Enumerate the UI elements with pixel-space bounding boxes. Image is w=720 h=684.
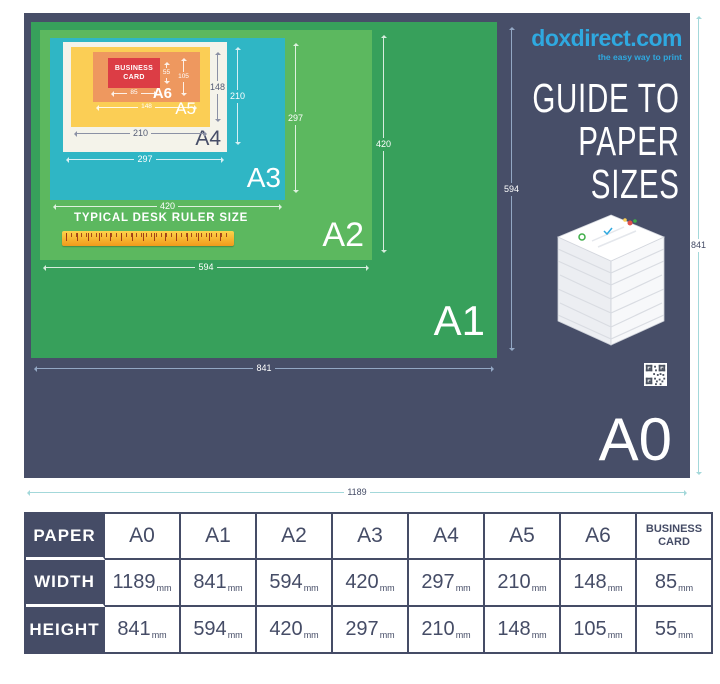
paper-sizes-table: PAPER A0 A1 A2 A3 A4 A5 A6 BUSINESS CARD… [24,512,713,654]
height-a3: 297mm [333,607,409,652]
width-a3: 420mm [333,560,409,607]
col-header-a5: A5 [485,514,561,560]
dim-a3-height: 297 [291,40,300,196]
dim-a4-width: 297 [63,155,227,164]
title-line-2: PAPER [533,120,680,163]
dim-a1-width: 841 [31,364,497,373]
paper-business-card: BUSINESS CARD [108,58,160,88]
height-a5: 148mm [485,607,561,652]
corner-header-paper: PAPER [26,514,105,560]
qr-code [644,363,667,386]
paper-stack-illustration [552,211,670,349]
height-a4: 210mm [409,607,485,652]
dim-a0-height: 841 [694,13,703,478]
label-a2: A2 [322,218,364,252]
label-a0: A0 [599,410,672,470]
dim-a3-width: 420 [50,202,285,211]
col-header-a3: A3 [333,514,409,560]
label-a3: A3 [247,164,281,192]
dim-business-card-height: 55 [162,59,171,87]
label-business-card: BUSINESS CARD [114,64,154,82]
dim-a2-height: 420 [379,32,388,256]
width-a6: 148mm [561,560,637,607]
title-line-3: SIZES [533,163,680,206]
col-header-a2: A2 [257,514,333,560]
height-business-card: 55mm [637,607,711,652]
poster-a0-sheet: A1 A2 A3 A4 A5 A6 BUSINESS CARD 55 85 10… [24,13,690,478]
col-header-a1: A1 [181,514,257,560]
brand-tagline: the easy way to print [531,52,682,62]
dim-a2-width: 594 [40,263,372,272]
dim-a6-height: 105 [179,55,188,99]
paper-sizes-infographic: A1 A2 A3 A4 A5 A6 BUSINESS CARD 55 85 10… [0,0,720,684]
row-header-width: WIDTH [26,560,105,607]
col-header-a0: A0 [105,514,181,560]
height-a1: 594mm [181,607,257,652]
height-a6: 105mm [561,607,637,652]
width-business-card: 85mm [637,560,711,607]
desk-ruler-illustration [62,231,234,246]
dim-a5-height: 148 [213,49,222,125]
col-header-business-card: BUSINESS CARD [637,514,711,560]
col-header-a6: A6 [561,514,637,560]
height-a2: 420mm [257,607,333,652]
col-header-a4: A4 [409,514,485,560]
dim-a5-width: 210 [71,129,210,138]
table-header-row: PAPER A0 A1 A2 A3 A4 A5 A6 BUSINESS CARD [26,514,711,560]
table-height-row: HEIGHT 841mm 594mm 420mm 297mm 210mm 148… [26,607,711,652]
dim-a4-height: 210 [233,44,242,148]
width-a0: 1189mm [105,560,181,607]
width-a4: 297mm [409,560,485,607]
brand-logo: doxdirect.com [531,27,682,50]
poster-title: GUIDE TO PAPER SIZES [475,77,680,206]
height-a0: 841mm [105,607,181,652]
row-header-height: HEIGHT [26,607,105,652]
dim-business-card-width: 85 [108,89,160,98]
width-a5: 210mm [485,560,561,607]
table-width-row: WIDTH 1189mm 841mm 594mm 420mm 297mm 210… [26,560,711,607]
width-a1: 841mm [181,560,257,607]
width-a2: 594mm [257,560,333,607]
ruler-caption: TYPICAL DESK RULER SIZE [74,212,248,224]
dim-a6-width: 148 [93,103,200,112]
brand-block: doxdirect.com the easy way to print [531,27,682,62]
dim-a0-width: 1189 [24,488,690,497]
label-a1: A1 [434,300,485,342]
title-line-1: GUIDE TO [533,77,680,120]
